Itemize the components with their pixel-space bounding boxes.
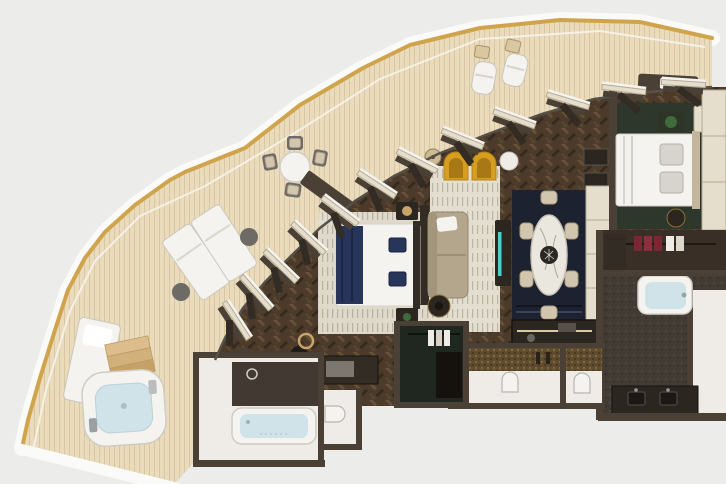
outdoor-chair	[287, 136, 303, 150]
bathroom-1	[193, 352, 378, 467]
hanging-clothes-white	[436, 330, 442, 346]
wall-shelf	[584, 149, 608, 165]
table-lamp	[402, 206, 412, 216]
closet-walls	[395, 321, 469, 326]
hanging-clothes-red	[644, 236, 652, 251]
headboard	[413, 221, 420, 309]
kitchen-sink	[527, 334, 535, 342]
water-closets	[448, 343, 605, 409]
dining-chair	[541, 306, 557, 319]
closet-cabinet	[604, 234, 626, 270]
hanging-clothes-white	[666, 236, 674, 251]
toilet-b	[574, 373, 590, 393]
wardrobe-room	[394, 321, 469, 408]
outdoor-chair	[312, 149, 329, 167]
sink	[660, 392, 677, 405]
wc-divider-wall	[560, 346, 566, 406]
toilet-nook	[320, 388, 362, 450]
bathtub	[232, 408, 316, 444]
dining-chair	[565, 271, 578, 287]
gold-mosaic-wall	[452, 346, 602, 371]
dining-chair	[565, 223, 578, 239]
closet-cabinets	[702, 90, 726, 230]
decor-plant	[403, 313, 411, 321]
sideboard	[495, 220, 511, 286]
master-bathtub	[638, 276, 692, 314]
wall-bottom	[598, 413, 726, 421]
floorplan-stage	[0, 0, 726, 484]
round-side-table	[240, 228, 258, 246]
double-sink-vanity	[612, 386, 698, 414]
toilet	[325, 406, 345, 422]
floorplan-render	[0, 0, 726, 484]
hanging-clothes-white	[444, 330, 450, 346]
bedroom2-bed	[616, 131, 700, 209]
teal-accent-light	[498, 232, 502, 276]
outdoor-chair	[284, 182, 302, 198]
round-side-table	[172, 283, 190, 301]
appliance	[558, 323, 576, 332]
pillow	[389, 238, 406, 252]
hanging-clothes-white	[676, 236, 684, 251]
dining-chair	[520, 271, 533, 287]
sink	[628, 392, 645, 405]
shower-area	[232, 362, 320, 406]
pouf	[667, 209, 685, 227]
wc-walls	[449, 343, 605, 348]
walk-in-closet	[600, 230, 726, 274]
sofa-pillow	[436, 216, 458, 232]
hanging-clothes-white	[428, 330, 434, 346]
bath1-walls	[194, 352, 324, 358]
accent-armchair-yellow	[472, 152, 496, 180]
wardrobe-cabinet	[436, 352, 462, 398]
pillow	[389, 272, 406, 286]
shower-fixture	[536, 352, 540, 364]
headboard	[692, 131, 700, 209]
pillow	[660, 144, 683, 165]
bedroom2	[609, 86, 726, 234]
hanging-clothes-red	[634, 236, 642, 251]
vanity-basin	[320, 356, 378, 384]
outdoor-chair	[262, 153, 279, 171]
dining-chair	[520, 223, 533, 239]
hanging-clothes-red	[654, 236, 662, 251]
dining-chair	[541, 191, 557, 204]
toilet-a	[502, 372, 518, 392]
wicker-side-table	[474, 45, 490, 59]
pillow	[660, 172, 683, 193]
wall-mid	[598, 270, 726, 276]
plant	[665, 116, 677, 128]
whirlpool-tub	[81, 368, 168, 448]
sofa	[428, 212, 468, 298]
round-side-table	[500, 152, 518, 170]
dining-area	[495, 186, 610, 322]
shower-fixture	[546, 352, 550, 364]
